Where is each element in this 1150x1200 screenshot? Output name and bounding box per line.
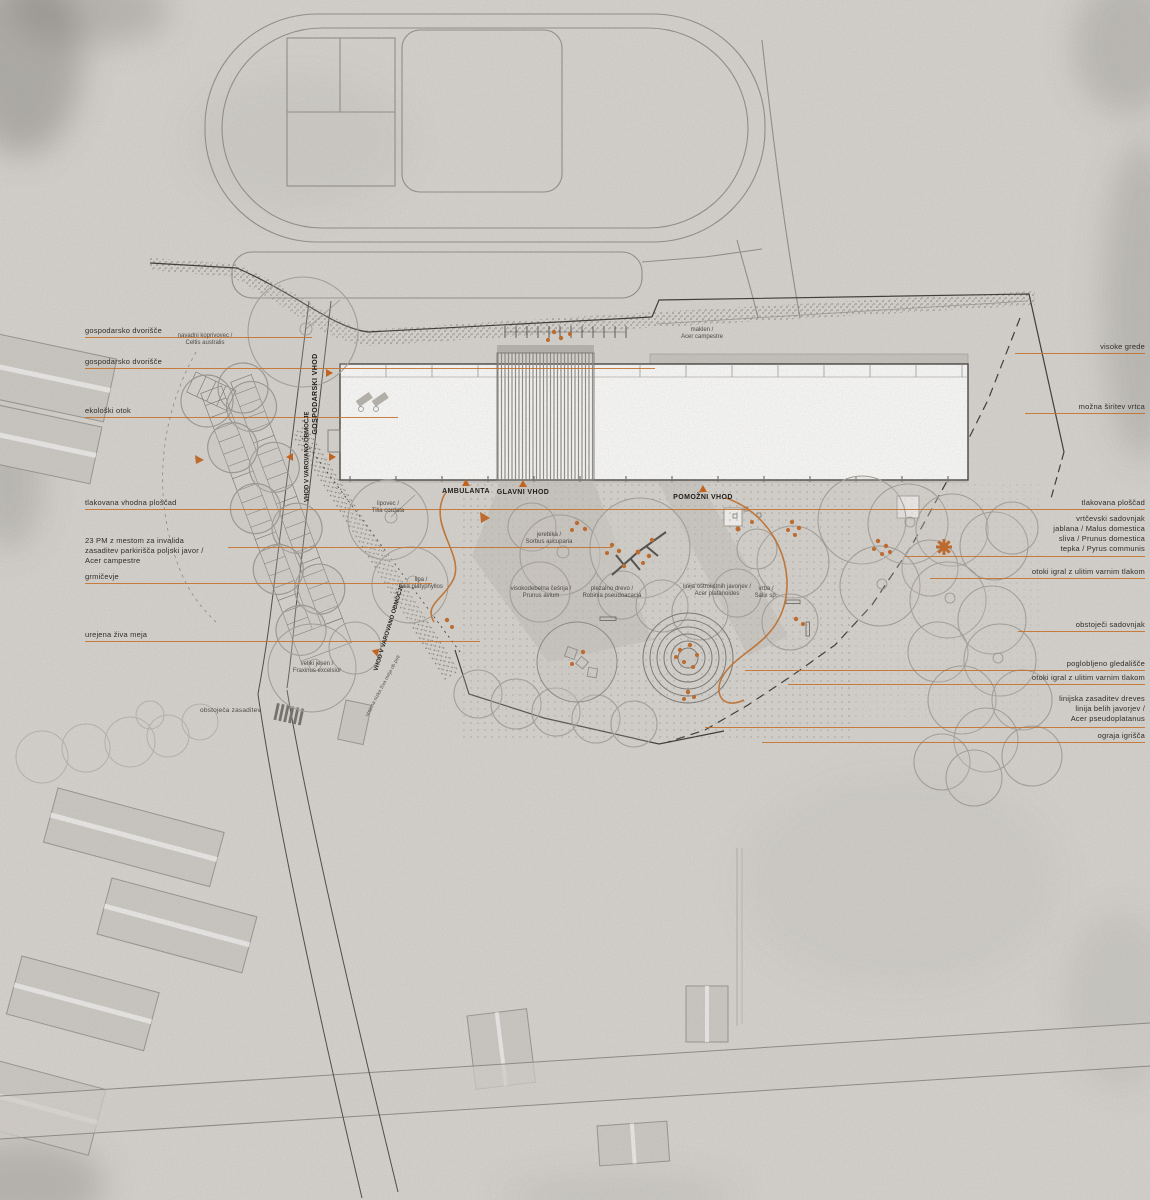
label-ekoloski-otok: ekološki otok	[85, 406, 131, 416]
leader-line	[85, 509, 1145, 510]
site-plan: gospodarsko dvorišče gospodarsko dvorišč…	[0, 0, 1150, 1200]
tree-label-plezalno-drevo: plezalno drevo /Robinia pseudoacacia	[582, 586, 641, 600]
label-gospodarsko-dvorisce-1: gospodarsko dvorišče	[85, 326, 162, 336]
leader-line	[905, 556, 1145, 557]
tree-label-lipovec: lipovec /Tilia cordata	[372, 501, 404, 515]
entrance-arrow-icon	[462, 479, 470, 486]
leader-line	[1018, 631, 1145, 632]
leader-line	[1025, 413, 1145, 414]
grain-overlay	[0, 0, 1150, 1200]
label-glavni-vhod: GLAVNI VHOD	[497, 489, 550, 497]
label-otoki-igral-2: otoki igral z ulitim varnim tlakom	[1032, 673, 1145, 683]
entrance-arrow-icon	[326, 369, 333, 377]
entrance-arrow-icon	[286, 453, 293, 461]
label-otoki-igral-1: otoki igral z ulitim varnim tlakom	[1032, 567, 1145, 577]
leader-line	[788, 684, 1145, 685]
label-sadovnjak-vrste: vrtčevski sadovnjak jablana / Malus dome…	[1053, 514, 1145, 554]
label-ziva-meja: urejena živa meja	[85, 630, 147, 640]
tree-label-vrba: vrba /Salix sp.	[755, 586, 778, 600]
site-plan-drawing	[0, 0, 1150, 1200]
label-linijska-zasaditev: linijska zasaditev dreves linija belih j…	[1059, 694, 1145, 724]
leader-line	[85, 368, 655, 369]
leader-line	[85, 583, 432, 584]
tree-label-javorji: linija ostrolistnih javorjev /Acer plata…	[683, 584, 751, 598]
label-ambulanta: AMBULANTA	[442, 488, 490, 496]
leader-line	[705, 727, 1145, 728]
tree-label-jerebika: jerebika /Sorbus aucuparia	[525, 532, 572, 546]
label-obstojeca-zasaditev: obstoječa zasaditev	[200, 706, 261, 716]
tree-label-cesnja: visokodebelna češnja /Prunus avium	[511, 586, 572, 600]
label-pomozni-vhod: POMOŽNI VHOD	[673, 494, 733, 502]
leader-line	[228, 547, 612, 548]
label-obstojeci-sadovnjak: obstoječi sadovnjak	[1076, 620, 1145, 630]
tree-label-jesen: veliki jesen /Fraxinus excelsior	[293, 661, 341, 675]
entrance-arrow-icon	[329, 453, 336, 461]
label-parkirisce: 23 PM z mestom za invalida zasaditev par…	[85, 536, 204, 566]
label-vhod-varovano-1: VHOD V VAROVANO OBMOČJE	[305, 412, 312, 502]
label-tlakovana-ploscad: tlakovana ploščad	[1082, 498, 1145, 508]
label-ograja-igrisca: ograja igrišča	[1098, 731, 1145, 741]
entrance-arrow-icon	[699, 485, 707, 492]
leader-line	[1015, 353, 1145, 354]
label-gospodarsko-dvorisce-2: gospodarsko dvorišče	[85, 357, 162, 367]
label-gledalisce: poglobljeno gledališče	[1067, 659, 1145, 669]
leader-line	[762, 742, 1145, 743]
label-tlakovana-vhodna-ploscad: tlakovana vhodna ploščad	[85, 498, 177, 508]
tree-label-koprivovec: navadni koprivovec /Celtis australis	[178, 333, 233, 347]
tree-label-maklen: maklen /Acer campestre	[681, 327, 723, 341]
leader-line	[745, 670, 1145, 671]
leader-line	[930, 578, 1145, 579]
leader-line	[85, 641, 480, 642]
label-grmicevje: grmičevje	[85, 572, 119, 582]
entrance-arrow-icon	[519, 480, 527, 487]
leader-line	[85, 417, 398, 418]
label-gospodarski-vhod: GOSPODARSKI VHOD	[312, 353, 320, 434]
label-moznost-siritve: možna širitev vrtca	[1079, 402, 1145, 412]
tree-label-lipa: lipa /Tilia platyphyllos	[399, 577, 443, 591]
label-visoke-grede: visoke grede	[1100, 342, 1145, 352]
